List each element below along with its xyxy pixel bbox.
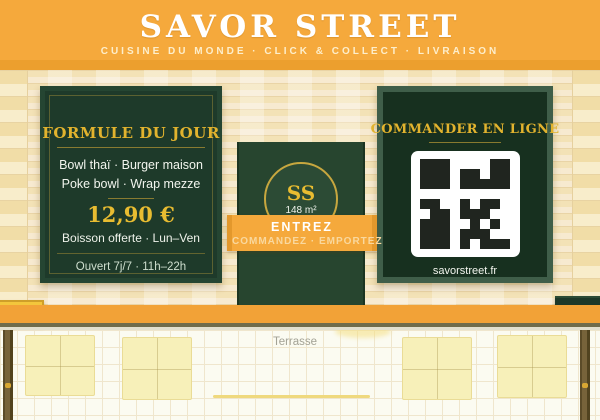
divider xyxy=(57,253,205,254)
divider xyxy=(429,142,501,143)
qr-code-icon xyxy=(420,159,510,249)
corner-stones-left xyxy=(0,70,28,330)
online-sign-title: COMMANDER EN LIGNE xyxy=(371,122,560,137)
terrace-table xyxy=(497,335,567,398)
menu-sign: FORMULE DU JOUR Bowl thaï · Burger maiso… xyxy=(40,86,222,283)
restaurant-tagline: CUISINE DU MONDE · CLICK & COLLECT · LIV… xyxy=(0,46,600,57)
menu-offer-note: Boisson offerte · Lun–Ven xyxy=(62,231,200,245)
floor-area-text: 148 m² xyxy=(285,205,316,216)
divider xyxy=(108,198,154,199)
website-url[interactable]: savorstreet.fr xyxy=(433,265,497,277)
restaurant-name: SAVOR STREET xyxy=(0,0,600,43)
menu-item-line: Bowl thaï · Burger maison xyxy=(59,158,203,172)
terrace-table xyxy=(402,337,472,400)
terrace-table xyxy=(122,337,192,400)
awning-bar xyxy=(0,305,600,323)
post-knob xyxy=(582,383,588,388)
menu-price: 12,90 € xyxy=(87,202,175,227)
monogram-text: SS xyxy=(287,183,315,203)
post-knob xyxy=(5,383,11,388)
terrace-label: Terrasse xyxy=(250,336,340,348)
terrace-post-left xyxy=(3,330,13,420)
entrez-title: ENTREZ xyxy=(232,220,372,234)
corner-stones-right xyxy=(572,70,600,330)
terrace-post-right xyxy=(580,330,590,420)
storefront-scene: SAVOR STREET CUISINE DU MONDE · CLICK & … xyxy=(0,0,600,420)
terrace-window: Terrasse xyxy=(0,330,600,420)
entrez-banner[interactable]: ENTREZ COMMANDEZ · EMPORTEZ xyxy=(227,215,377,251)
awning-lip xyxy=(0,327,600,330)
menu-item-line: Poke bowl · Wrap mezze xyxy=(62,177,201,191)
terrace-table xyxy=(25,335,95,396)
menu-sign-title: FORMULE DU JOUR xyxy=(42,124,220,142)
brick-wall: FORMULE DU JOUR Bowl thaï · Burger maiso… xyxy=(0,70,600,330)
header-banner: SAVOR STREET CUISINE DU MONDE · CLICK & … xyxy=(0,0,600,70)
opening-hours: Ouvert 7j/7 · 11h–22h xyxy=(76,261,186,273)
entrez-subtitle: COMMANDEZ · EMPORTEZ xyxy=(232,236,372,247)
divider xyxy=(57,147,205,148)
bench-line xyxy=(213,395,370,398)
qr-code-panel[interactable] xyxy=(411,151,520,257)
online-order-sign: COMMANDER EN LIGNE savorstreet.fr xyxy=(377,86,553,283)
